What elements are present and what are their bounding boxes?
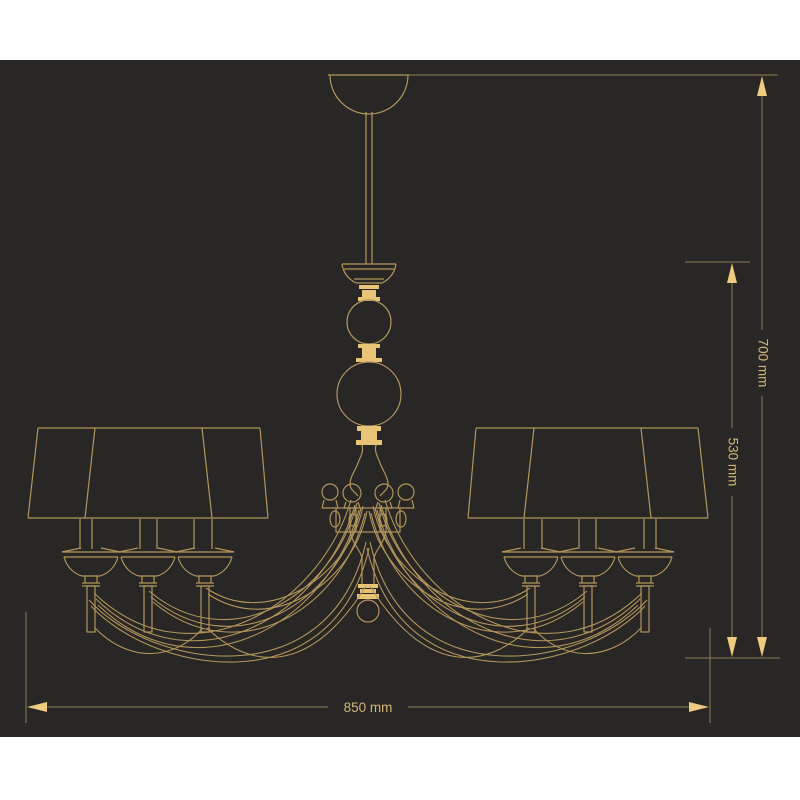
label-total-width: 850 mm (344, 700, 393, 715)
drawing-canvas (0, 60, 800, 737)
label-total-height: 700 mm (755, 339, 770, 388)
label-body-height: 530 mm (725, 438, 740, 487)
drawing-page: 700 mm 530 mm 850 mm (0, 0, 800, 800)
chandelier-dimension-drawing: 700 mm 530 mm 850 mm (0, 0, 800, 800)
